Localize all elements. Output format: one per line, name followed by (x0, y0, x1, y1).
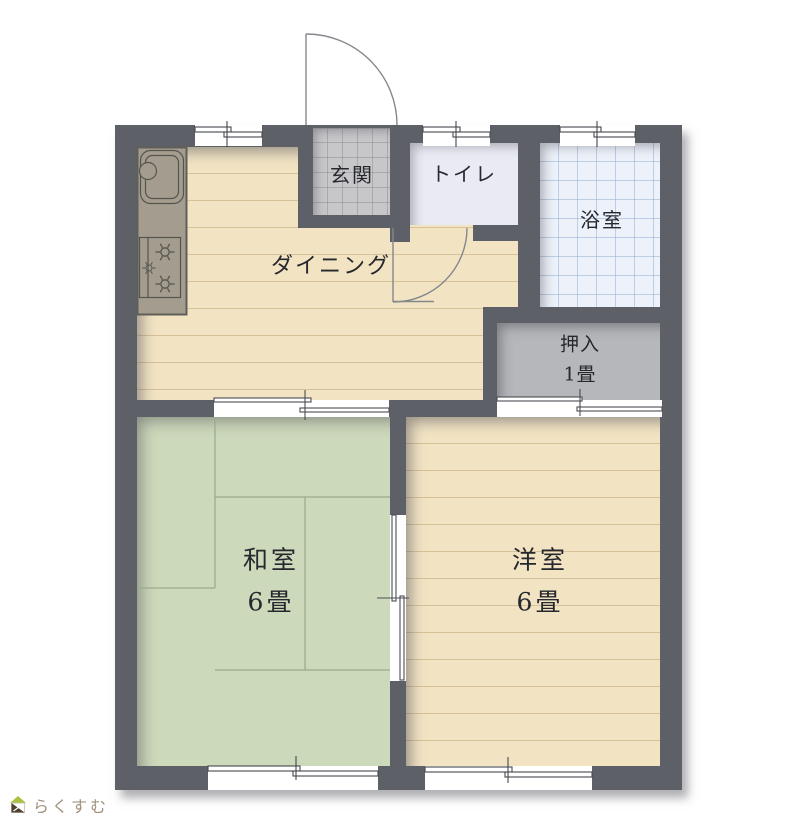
floor-plan: ダイニング 玄関 トイレ 浴室 押入 1畳 和室 6畳 洋室 6畳 らくすむ (0, 0, 801, 821)
window-opening-toilet (423, 125, 490, 146)
rakusumu-logo-icon (8, 795, 28, 815)
room-size-oshiire: 1畳 (563, 366, 596, 385)
room-size-washitsu: 6畳 (248, 590, 295, 615)
wall-toilet-bath (518, 125, 540, 307)
window-opening-youshitsu (425, 766, 592, 790)
entrance-door-arc (306, 34, 397, 129)
window-opening-dining (195, 125, 262, 146)
room-label-washitsu: 和室 (243, 548, 299, 573)
rakusumu-logo-text: らくすむ (33, 793, 109, 817)
rakusumu-logo: らくすむ (8, 793, 109, 817)
room-label-bath: 浴室 (580, 210, 624, 230)
window-opening-bath (560, 125, 635, 146)
room-label-dining: ダイニング (271, 256, 391, 278)
wall-genkan-left (298, 125, 313, 228)
window-opening-washitsu (208, 766, 378, 790)
wall-toilet-bottom-stub (473, 225, 518, 241)
sliding-opening-dining-washitsu (214, 400, 389, 417)
room-label-oshiire: 押入 (560, 336, 600, 355)
sliding-opening-washitsu-youshitsu (390, 515, 406, 681)
room-size-youshitsu: 6畳 (517, 590, 564, 615)
room-label-genkan: 玄関 (330, 165, 374, 185)
room-label-youshitsu: 洋室 (512, 548, 568, 573)
sliding-opening-oshiire (497, 400, 662, 417)
wall-genkan-toilet (390, 125, 410, 242)
wall-oshiire-left (483, 307, 497, 417)
wall-bath-bottom (483, 307, 682, 323)
room-label-toilet: トイレ (431, 164, 497, 184)
